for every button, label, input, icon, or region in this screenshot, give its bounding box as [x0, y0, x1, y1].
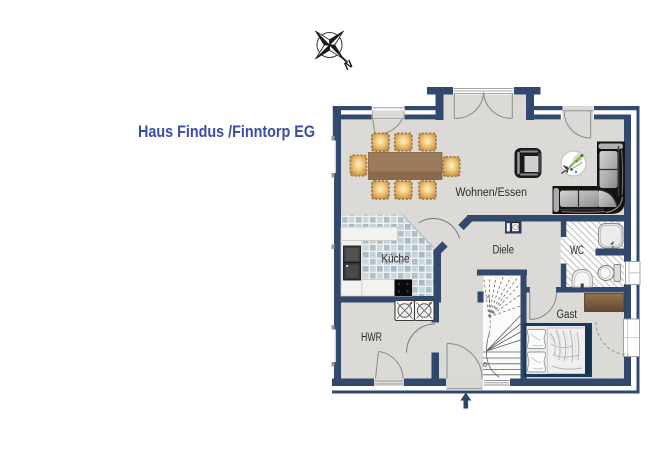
svg-text:Haus Findus /Finntorp EG: Haus Findus /Finntorp EG [138, 122, 315, 141]
svg-text:HWR: HWR [361, 332, 382, 344]
svg-text:Küche: Küche [382, 254, 410, 266]
svg-text:Wohnen/Essen: Wohnen/Essen [456, 187, 528, 199]
svg-text:Diele: Diele [493, 245, 515, 257]
svg-text:WC: WC [570, 245, 584, 257]
svg-text:Gast: Gast [557, 309, 578, 321]
